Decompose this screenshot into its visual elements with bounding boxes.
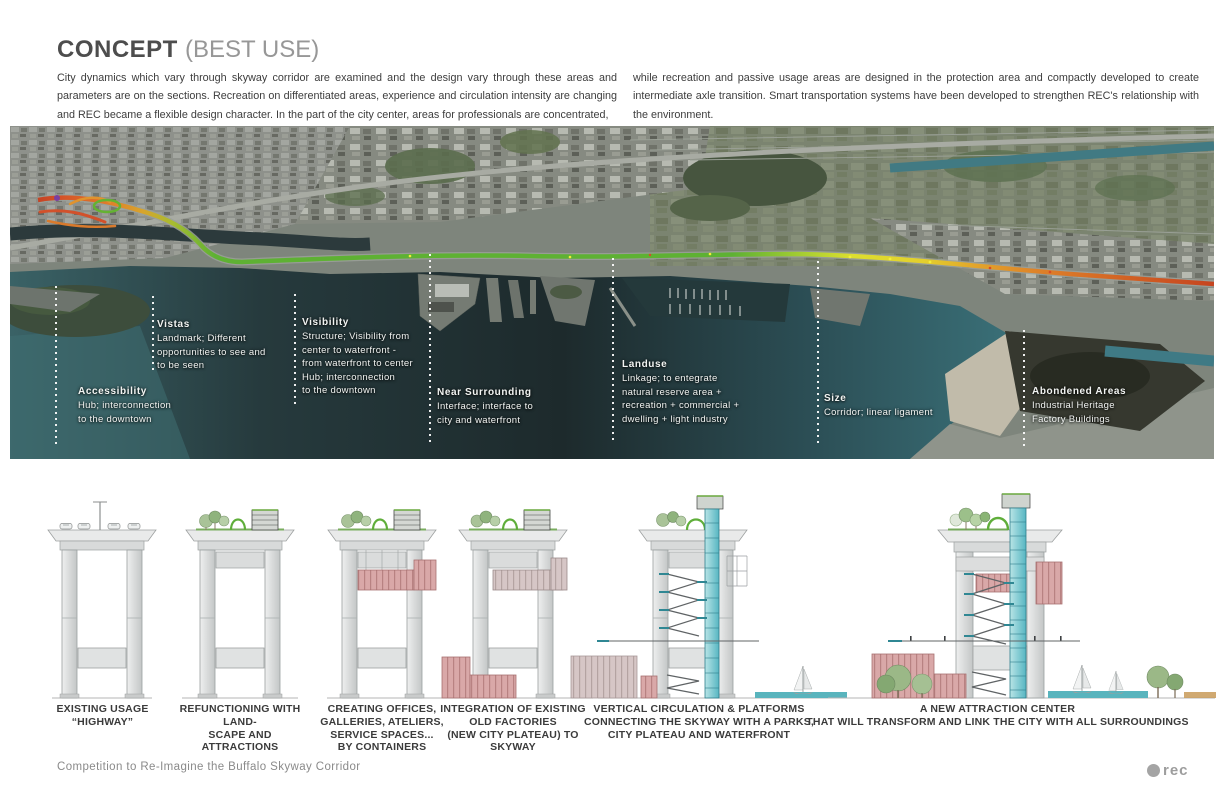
roof-garden <box>950 508 990 530</box>
dotted-leader-line <box>612 258 614 444</box>
section-5-vertical-circulation <box>571 496 853 698</box>
concept-board: CONCEPT (BEST USE) City dynamics which v… <box>0 0 1224 792</box>
dotted-leader-line <box>1023 330 1025 446</box>
annotation-title: Accessibility <box>78 386 171 397</box>
map-annotation-vistas: Vistas Landmark; Different opportunities… <box>157 319 266 373</box>
title-main: CONCEPT <box>57 36 178 63</box>
intro-paragraph-left: City dynamics which vary through skyway … <box>57 69 617 124</box>
deck-trees <box>200 511 230 530</box>
green-arch <box>988 518 1008 530</box>
annotation-title: Landuse <box>622 359 739 370</box>
right-trees <box>1147 666 1216 698</box>
map-annotation-landuse: Landuse Linkage; to entegrate natural re… <box>622 359 739 426</box>
section-1-existing-highway <box>48 502 156 698</box>
map-annotation-abandoned-areas: Abondened Areas Industrial Heritage Fact… <box>1032 386 1126 426</box>
dotted-leader-line <box>152 296 154 374</box>
factory-wall <box>571 656 637 698</box>
rec-logo-dot-icon <box>1147 764 1160 777</box>
annotation-title: Near Surrounding <box>437 387 533 398</box>
zigzag-stairs <box>667 574 699 694</box>
map-annotation-visibility: Visibility Structure; Visibility from ce… <box>302 317 413 398</box>
section-caption-1: EXISTING USAGE “HIGHWAY” <box>35 703 170 729</box>
annotation-title: Abondened Areas <box>1032 386 1126 397</box>
water-strip <box>755 692 847 698</box>
corridor-aerial-map: Accessibility Hub; interconnection to th… <box>10 126 1214 459</box>
map-annotation-near-surrounding: Near Surrounding Interface; interface to… <box>437 387 533 427</box>
annotation-title: Visibility <box>302 317 413 328</box>
container-stack <box>641 676 657 698</box>
section-caption-2: REFUNCTIONING WITH LAND- SCAPE AND ATTRA… <box>165 703 315 754</box>
section-6-attraction-center <box>828 494 1216 698</box>
rec-logo-text: rec <box>1163 762 1189 779</box>
annotation-title: Size <box>824 393 933 404</box>
map-annotation-accessibility: Accessibility Hub; interconnection to th… <box>78 386 171 426</box>
section-caption-6: A NEW ATTRACTION CENTER THAT WILL TRANSF… <box>785 703 1210 729</box>
dotted-leader-line <box>294 294 296 404</box>
title-subtitle: (BEST USE) <box>185 36 319 63</box>
ground-factories <box>872 654 966 698</box>
container-upper-right <box>1036 562 1062 604</box>
section-caption-4: INTEGRATION OF EXISTING OLD FACTORIES (N… <box>423 703 603 754</box>
dotted-leader-line <box>817 261 819 445</box>
map-annotation-size: Size Corridor; linear ligament <box>824 393 933 420</box>
annotation-title: Vistas <box>157 319 266 330</box>
section-caption-5: VERTICAL CIRCULATION & PLATFORMS CONNECT… <box>578 703 820 741</box>
water-strip <box>1048 691 1148 698</box>
section-3-containers <box>327 510 457 698</box>
intro-paragraph-right: while recreation and passive usage areas… <box>633 69 1199 124</box>
transformation-sections: EXISTING USAGE “HIGHWAY” REFUNCTIONING W… <box>0 478 1224 713</box>
section-diagrams-illustration <box>0 478 1224 713</box>
dotted-leader-line <box>55 286 57 444</box>
competition-title: Competition to Re-Imagine the Buffalo Sk… <box>57 761 361 773</box>
dotted-leader-line <box>429 254 431 444</box>
page-title: CONCEPT (BEST USE) <box>57 36 319 64</box>
section-2-landscape <box>182 510 298 698</box>
green-arch <box>231 520 245 531</box>
rec-logo: rec <box>1147 762 1189 779</box>
section-4-old-factories <box>428 510 593 698</box>
